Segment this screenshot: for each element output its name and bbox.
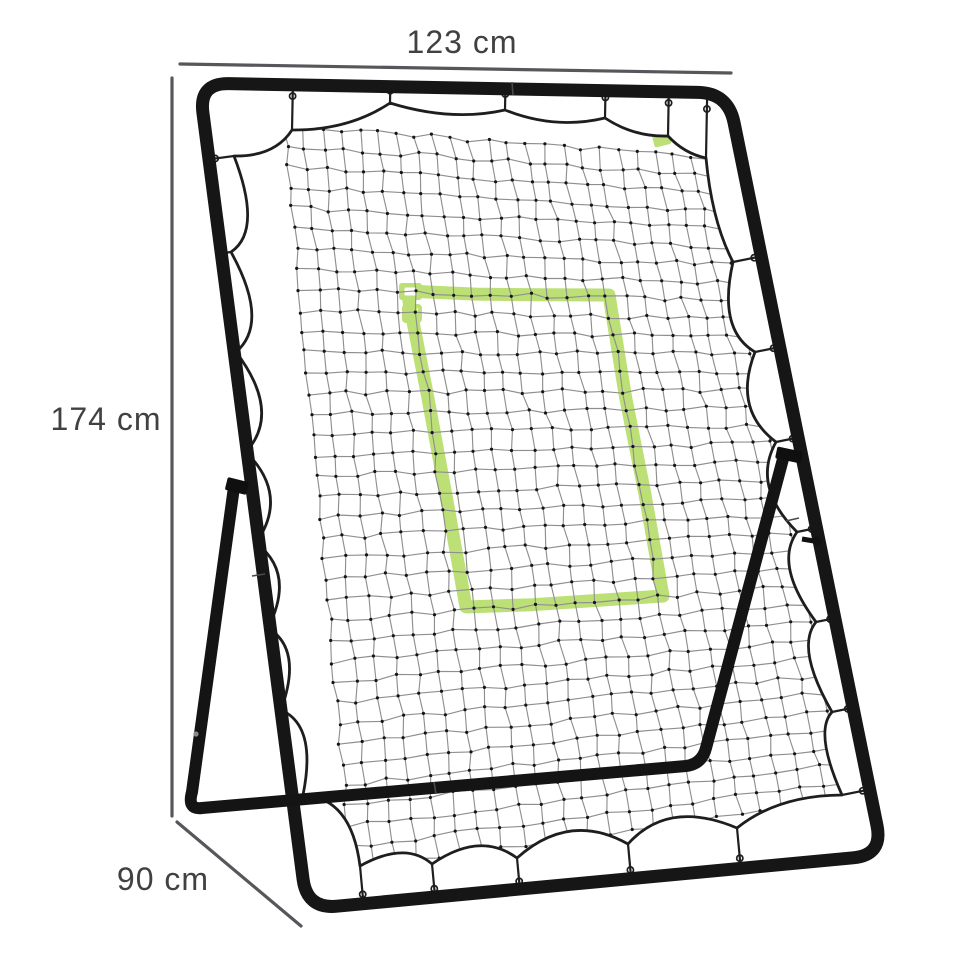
bungee-cord <box>668 92 669 136</box>
rebounder-illustration: 123 cm 174 cm 90 cm <box>0 0 960 960</box>
bungee-cord <box>706 93 707 158</box>
width-dimension-label: 123 cm <box>407 24 518 60</box>
adjustment-knob-icon <box>813 537 821 545</box>
bungee-cord <box>292 85 293 130</box>
adjustment-knob-stem <box>802 539 814 541</box>
net-tag-left <box>282 106 310 128</box>
net-mesh <box>281 106 849 870</box>
frame-joint-seam <box>512 82 513 95</box>
support-tube <box>191 459 783 808</box>
height-dimension-label: 174 cm <box>51 401 162 437</box>
leg-bolt-icon <box>193 731 198 736</box>
depth-dimension-label: 90 cm <box>117 861 209 897</box>
frame-joint-seam <box>786 518 799 521</box>
product-dimension-image: 123 cm 174 cm 90 cm <box>0 0 960 960</box>
width-dimension-line <box>180 64 731 73</box>
